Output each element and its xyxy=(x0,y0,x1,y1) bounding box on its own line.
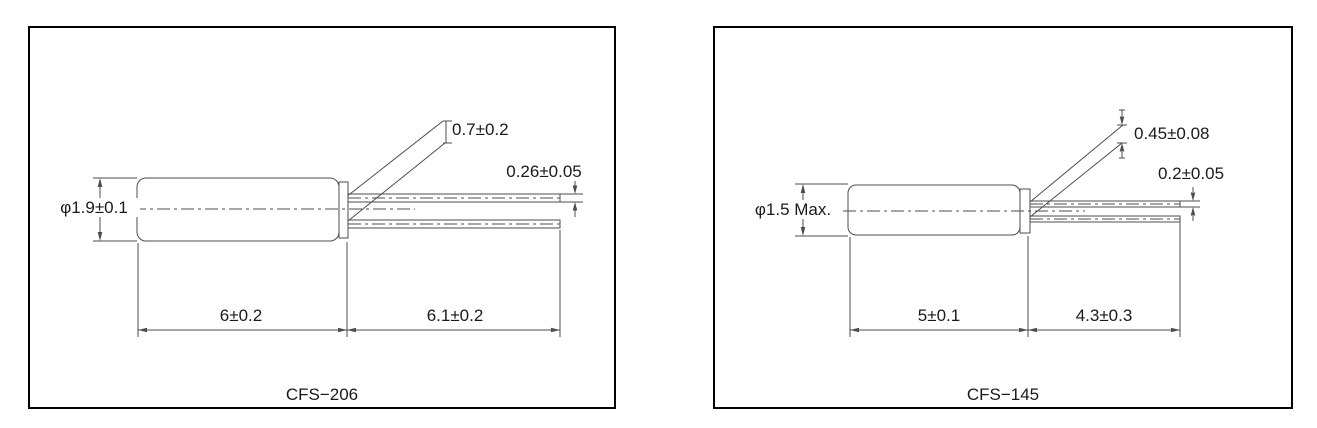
model-name-label: CFS−145 xyxy=(713,385,1293,404)
lead-diameter-dimension-marks xyxy=(560,179,583,217)
diameter-dimension-label: φ1.9±0.1 xyxy=(48,198,140,217)
model-name-label: CFS−206 xyxy=(28,385,616,404)
lead-spacing-dimension-label: 0.7±0.2 xyxy=(452,120,509,139)
panel-cfs-206: φ1.9±0.1 0.7±0.2 0.26±0.05 6±0.2 6.1±0.2… xyxy=(28,26,616,409)
lead-length-dimension-label: 4.3±0.3 xyxy=(1054,306,1154,325)
cfs-206-drawing xyxy=(28,26,616,409)
body-length-dimension-label: 6±0.2 xyxy=(191,306,291,325)
lead-spacing-dimension-label: 0.45±0.08 xyxy=(1134,124,1210,143)
lead-diameter-dimension-label: 0.2±0.05 xyxy=(1141,164,1241,183)
lead-spacing-dimension-marks xyxy=(443,121,452,143)
lead-diameter-dimension-label: 0.26±0.05 xyxy=(498,162,590,181)
lead-diameter-dimension-marks xyxy=(1180,187,1200,221)
datasheet-outline-drawings: φ1.9±0.1 0.7±0.2 0.26±0.05 6±0.2 6.1±0.2… xyxy=(0,0,1317,428)
lead-length-dimension-label: 6.1±0.2 xyxy=(405,306,505,325)
diameter-dimension-label: φ1.5 Max. xyxy=(743,200,843,219)
lead-wires xyxy=(348,194,560,228)
crystal-body xyxy=(848,185,1030,235)
lead-spacing-dimension-marks xyxy=(1117,110,1127,158)
panel-cfs-145: φ1.5 Max. 0.45±0.08 0.2±0.05 5±0.1 4.3±0… xyxy=(713,26,1293,409)
body-length-dimension-label: 5±0.1 xyxy=(889,306,989,325)
formed-lead-lines xyxy=(348,121,445,221)
